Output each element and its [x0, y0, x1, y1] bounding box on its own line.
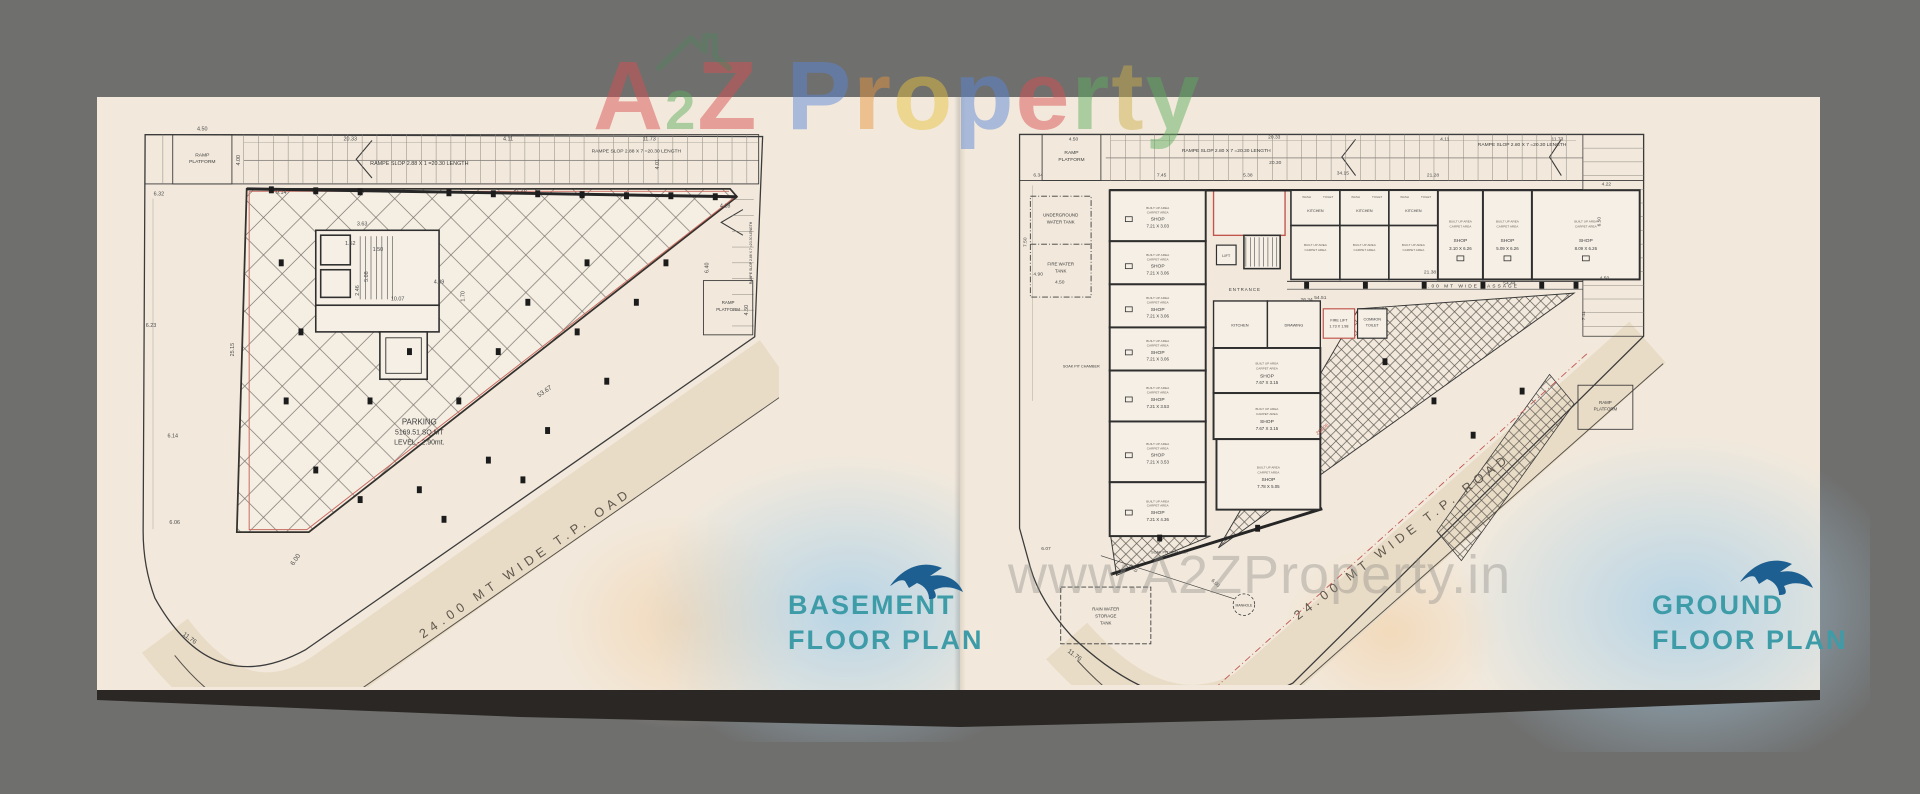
shop-subtext: CARPET AREA — [1450, 224, 1473, 228]
dim-label: 54.51 — [1314, 295, 1326, 301]
column-marker — [269, 186, 274, 193]
watermark-letter: p — [954, 41, 1015, 150]
dim-label: 21.38 — [1424, 270, 1436, 276]
ramp-slope-label: RAMPE SLOP 2.80 X 7 =20.30 LENGTH — [1478, 142, 1567, 148]
dim-label: 4.50 — [197, 127, 208, 133]
lift-label: LIFT — [1222, 253, 1231, 258]
dim-label: 26.34 — [1301, 297, 1313, 303]
parking-hatch — [237, 189, 737, 532]
watermark-word-property: Property — [787, 41, 1202, 150]
watermark-url: www.A2ZProperty.in — [1008, 544, 1511, 606]
common-toilet-label: TOILET — [1366, 323, 1380, 327]
shop-room — [1110, 190, 1206, 241]
dim-label: 4.00 — [236, 155, 242, 166]
shop-label: SHOP — [1501, 238, 1515, 244]
toilet-label: TOILET — [1372, 195, 1382, 199]
fire-tank-label: TANK — [1055, 269, 1066, 274]
shop-subtext: CARPET AREA — [1497, 224, 1520, 228]
shop-label: SHOP — [1151, 264, 1165, 270]
column-marker — [313, 467, 318, 474]
column-marker — [1383, 358, 1388, 365]
dim-label: 11.73 — [1551, 136, 1563, 142]
shop-room — [1110, 241, 1206, 284]
shop-subtext: CARPET AREA — [1353, 248, 1376, 252]
shop-subtext: BUILT UP AREA — [1146, 206, 1170, 210]
dim-label: 1.52 — [345, 241, 356, 247]
shop-label: SHOP — [1260, 419, 1274, 425]
wash-label: WASH — [1351, 195, 1360, 199]
unit-room — [1340, 226, 1389, 280]
shop-size-label: 7.67 X 3.15 — [1256, 426, 1279, 431]
ramp-platform-label: PLATFORM — [189, 159, 215, 165]
dim-label: 1.50 — [373, 247, 384, 253]
seagull-icon — [1738, 552, 1814, 596]
shop-label: SHOP — [1454, 238, 1468, 244]
toilet-label: TOILET — [1421, 195, 1431, 199]
dim-label: 6.06 — [169, 520, 180, 526]
watermark-house-icon — [655, 26, 741, 72]
dim-label: 20.30 — [1269, 160, 1281, 166]
watermark-letter: r — [1071, 41, 1111, 150]
shop-room — [1483, 190, 1532, 279]
watermark-letter: P — [787, 41, 854, 150]
shop-size-label: 3.10 X 6.26 — [1449, 246, 1472, 251]
watermark-letter: r — [853, 41, 893, 150]
shop-subtext: BUILT UP AREA — [1449, 220, 1473, 224]
dim-label: 6.32 — [154, 192, 165, 198]
dim-label: 3.63 — [357, 221, 368, 227]
dim-label: 25.15 — [230, 343, 236, 357]
rain-tank-label: STORAGE — [1095, 613, 1116, 618]
shop-subtext: CARPET AREA — [1147, 300, 1170, 304]
dim-label: 7.11 — [1581, 311, 1587, 320]
fire-lift-label: 1.73 X 1.98 — [1329, 324, 1348, 328]
shop-subtext: BUILT UP AREA — [1402, 243, 1426, 247]
column-marker — [299, 328, 304, 335]
ground-title-line2: FLOOR PLAN — [1652, 623, 1848, 658]
shop-room — [1110, 421, 1206, 482]
ramp-platform-label: PLATFORM — [1058, 157, 1084, 163]
shop-size-label: 7.21 X 3.53 — [1146, 404, 1169, 409]
dim-label: 54.44 — [1503, 280, 1515, 286]
column-marker — [1481, 282, 1486, 289]
shop-subtext: BUILT UP AREA — [1255, 362, 1279, 366]
column-marker — [575, 328, 580, 335]
column-marker — [358, 496, 363, 503]
shop-subtext: BUILT UP AREA — [1146, 499, 1170, 503]
shop-size-label: 8.09 X 6.26 — [1575, 246, 1598, 251]
dim-label: 20.33 — [1268, 134, 1280, 140]
shop-subtext: BUILT UP AREA — [1255, 407, 1279, 411]
column-marker — [1255, 525, 1260, 532]
column-marker — [1157, 535, 1162, 542]
column-marker — [520, 476, 525, 483]
shop-subtext: CARPET AREA — [1147, 257, 1170, 261]
shop-subtext: BUILT UP AREA — [1496, 220, 1520, 224]
dim-label: 10.07 — [391, 296, 405, 302]
ramp-arrow — [1342, 139, 1356, 175]
ramp-platform-label: PLATFORM — [1594, 407, 1618, 412]
ramp-platform-label: RAMP — [195, 152, 210, 158]
underground-tank-label: UNDERGROUND — [1043, 213, 1078, 218]
dim-label: 9.14 — [276, 190, 287, 196]
dim-label: 4.39 — [434, 280, 445, 286]
shop-subtext: BUILT UP AREA — [1146, 442, 1170, 446]
dim-label: 6.40 — [704, 262, 710, 273]
shop-subtext: BUILT UP AREA — [1353, 243, 1377, 247]
dim-label: 4.90 — [1033, 272, 1043, 278]
rain-tank-label: RAIN WATER — [1092, 607, 1119, 612]
shop-subtext: CARPET AREA — [1256, 412, 1279, 416]
ramp-platform-label: PLATFORM — [716, 307, 740, 312]
toilet-label: TOILET — [1323, 195, 1333, 199]
column-marker — [1539, 282, 1544, 289]
dim-label: 7.50 — [1022, 237, 1028, 247]
column-marker — [1574, 282, 1579, 289]
parking-label: PARKING — [402, 418, 437, 427]
shop-subtext: BUILT UP AREA — [1574, 220, 1598, 224]
shop-room — [1532, 190, 1640, 279]
shop-label: SHOP — [1151, 307, 1165, 313]
rain-tank-label: TANK — [1100, 620, 1111, 625]
shop-label: SHOP — [1260, 373, 1274, 379]
ramp-slope-label: RAMPE SLOP 2.88 X 7 =20.30 LENGTH — [749, 221, 753, 284]
parking-label: 5169.51 SQ.MT — [395, 429, 444, 436]
dim-label: 5.38 — [1243, 173, 1253, 179]
shop-size-label: 7.21 X 3.06 — [1146, 357, 1169, 362]
shop-subtext: CARPET AREA — [1147, 210, 1170, 214]
fire-lift-label: FIRE LIFT — [1330, 319, 1348, 323]
watermark-letter: y — [1146, 41, 1202, 150]
ramp-arrow — [356, 141, 372, 178]
shop-label: SHOP — [1151, 397, 1165, 403]
column-marker — [407, 348, 412, 355]
wash-label: WASH — [1400, 195, 1409, 199]
stair-block — [1244, 235, 1280, 268]
shop-size-label: 7.21 X 3.06 — [1146, 314, 1169, 319]
basement-floor-plan-drawing: RAMP PLATFORM RAMP PLATFORM RAMPE SLOP 2… — [109, 105, 779, 687]
shop-label: SHOP — [1261, 477, 1275, 483]
basement-title-line2: FLOOR PLAN — [788, 623, 984, 658]
kitchen-label: KITCHEN — [1405, 209, 1422, 213]
shop-subtext: BUILT UP AREA — [1146, 296, 1170, 300]
shop-size-label: 7.21 X 3.53 — [1146, 460, 1169, 465]
dim-label: 6.14 — [167, 433, 178, 439]
column-marker — [1304, 282, 1309, 289]
shop-size-label: 7.78 X 5.05 — [1257, 484, 1280, 489]
column-marker — [486, 457, 491, 464]
column-marker — [358, 188, 363, 195]
column-marker — [446, 189, 451, 196]
column-marker — [545, 427, 550, 434]
wash-label: WASH — [1302, 195, 1311, 199]
shop-subtext: CARPET AREA — [1575, 224, 1598, 228]
kitchen-label: KITCHEN — [1231, 322, 1248, 327]
column-marker — [525, 299, 530, 306]
column-marker — [313, 187, 318, 194]
column-marker — [456, 397, 461, 404]
shop-size-label: 7.21 X 3.06 — [1146, 271, 1169, 276]
dim-label: 2.46 — [355, 285, 361, 296]
dim-label: 5.08 — [364, 271, 370, 282]
shop-subtext: CARPET AREA — [1147, 391, 1170, 395]
column-marker — [284, 397, 289, 404]
fire-tank-label: FIRE WATER — [1047, 262, 1074, 267]
dim-label: 4.11 — [503, 137, 513, 143]
ramp-platform-label: RAMP — [722, 300, 735, 305]
dim-label: 7.45 — [1157, 173, 1167, 179]
seagull-icon — [888, 556, 964, 600]
column-marker — [279, 259, 284, 266]
shop-label: SHOP — [1151, 350, 1165, 356]
parking-label: LEVEL - 2.90mt. — [394, 439, 444, 446]
dim-label: 1.70 — [461, 291, 467, 302]
dim-label: 4.50 — [1055, 279, 1065, 285]
shop-subtext: CARPET AREA — [1147, 344, 1170, 348]
column-marker — [585, 259, 590, 266]
column-marker — [1422, 282, 1427, 289]
column-marker — [1432, 397, 1437, 404]
dim-label: 4.01 — [655, 159, 661, 170]
soak-pit-label: SOAK PIT CHAMBER — [1063, 365, 1100, 369]
column-marker — [535, 190, 540, 197]
shop-subtext: BUILT UP AREA — [1146, 253, 1170, 257]
dim-label: 6.34 — [1033, 173, 1043, 179]
common-toilet-label: COMMON — [1364, 318, 1382, 322]
shop-size-label: 7.67 X 3.15 — [1256, 380, 1279, 385]
dim-label: 6.00 — [289, 552, 302, 567]
ramp-platform-label: RAMP — [1599, 400, 1612, 405]
dim-label: 4.50 — [1600, 275, 1610, 281]
shop-subtext: CARPET AREA — [1402, 248, 1425, 252]
dim-label: 34.15 — [1337, 171, 1349, 177]
column-marker — [580, 191, 585, 198]
column-marker — [491, 190, 496, 197]
dim-label: 4.50 — [744, 305, 750, 316]
underground-tank-label: WATER TANK — [1047, 220, 1075, 225]
dim-label: 6.23 — [146, 323, 157, 329]
dim-label: 21.28 — [513, 188, 527, 194]
shop-room — [1438, 190, 1483, 279]
shop-label: SHOP — [1151, 217, 1165, 223]
shop-size-label: 7.21 X 4.36 — [1146, 517, 1169, 522]
shop-room — [1110, 371, 1206, 422]
shop-label: SHOP — [1151, 453, 1165, 459]
column-marker — [634, 299, 639, 306]
brochure-spread: RAMP PLATFORM RAMP PLATFORM RAMPE SLOP 2… — [0, 0, 1920, 794]
ground-title: GROUND FLOOR PLAN — [1652, 588, 1848, 657]
shop-size-label: 7.21 X 3.03 — [1146, 223, 1169, 228]
column-marker — [1520, 388, 1525, 395]
column-marker — [624, 192, 629, 199]
column-marker — [417, 486, 422, 493]
ramp-slope-label: RAMPE SLOP 2.88 X 1 =20.30 LENGTH — [370, 161, 468, 167]
shop-label: SHOP — [1579, 238, 1593, 244]
dim-label: 20.33 — [344, 137, 358, 143]
column-marker — [1363, 282, 1368, 289]
kitchen-label: KITCHEN — [1356, 209, 1373, 213]
column-marker — [668, 192, 673, 199]
unit-room — [1291, 226, 1340, 280]
shop-size-label: 5.09 X 6.26 — [1496, 246, 1519, 251]
shop-subtext: CARPET AREA — [1305, 248, 1328, 252]
column-marker — [496, 348, 501, 355]
watermark-letter: o — [893, 41, 954, 150]
column-marker — [1471, 432, 1476, 439]
toilet-block — [1214, 190, 1286, 235]
dim-label: 21.28 — [1427, 173, 1439, 179]
shop-subtext: BUILT UP AREA — [1146, 339, 1170, 343]
watermark-letter: e — [1016, 41, 1072, 150]
shop-subtext: BUILT UP AREA — [1257, 465, 1281, 469]
column-marker — [604, 378, 609, 385]
watermark-letter: 2 — [665, 80, 697, 141]
watermark-a2z: A2ZProperty — [593, 40, 1202, 152]
column-marker — [442, 516, 447, 523]
shop-subtext: CARPET AREA — [1147, 504, 1170, 508]
shop-room — [1110, 327, 1206, 370]
shop-subtext: CARPET AREA — [1256, 367, 1279, 371]
dim-label: 53.67 — [536, 384, 554, 399]
entrance-label: ENTRANCE — [1229, 287, 1261, 292]
drawing-label: DRAWING — [1285, 322, 1304, 327]
dim-label: 4.11 — [1440, 136, 1449, 142]
column-marker — [663, 259, 668, 266]
kitchen-label: KITCHEN — [1307, 209, 1324, 213]
watermark-letter: t — [1111, 41, 1145, 150]
shop-room — [1110, 482, 1206, 536]
shop-subtext: BUILT UP AREA — [1304, 243, 1328, 247]
shop-room — [1110, 284, 1206, 327]
dim-label: 6.50 — [1597, 217, 1603, 227]
dim-label: 4.22 — [1602, 181, 1612, 187]
column-marker — [713, 193, 718, 200]
shop-label: SHOP — [1151, 510, 1165, 516]
dim-label: 4.18 — [720, 204, 731, 210]
column-marker — [368, 397, 373, 404]
shop-subtext: CARPET AREA — [1257, 470, 1280, 474]
shop-subtext: BUILT UP AREA — [1146, 386, 1170, 390]
shop-subtext: CARPET AREA — [1147, 446, 1170, 450]
